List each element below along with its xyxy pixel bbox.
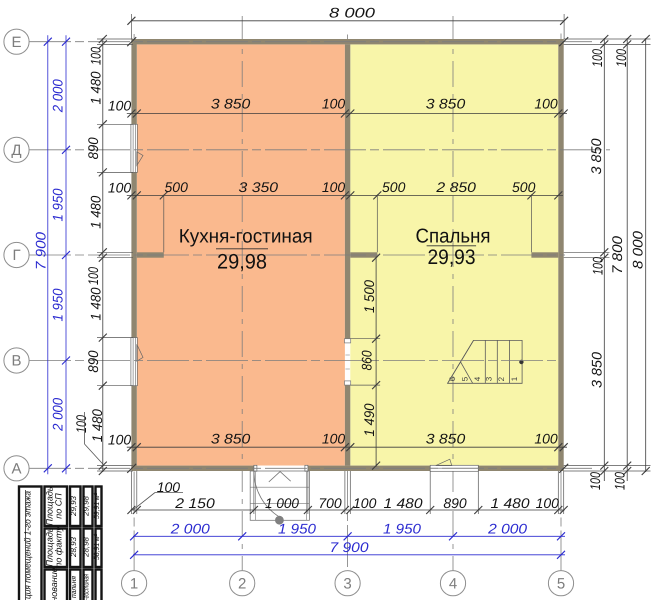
svg-text:100: 100: [589, 49, 605, 67]
svg-text:1 950: 1 950: [50, 188, 66, 221]
svg-text:3 850: 3 850: [426, 96, 466, 112]
svg-text:1 480: 1 480: [89, 409, 105, 442]
svg-text:по СП: по СП: [54, 493, 64, 519]
svg-text:1 480: 1 480: [88, 71, 104, 104]
svg-text:100: 100: [590, 257, 606, 275]
svg-text:100: 100: [108, 97, 132, 113]
svg-text:7 900: 7 900: [33, 232, 49, 270]
svg-text:1 950: 1 950: [278, 520, 316, 536]
svg-text:100: 100: [322, 96, 346, 112]
svg-text:100: 100: [534, 96, 558, 112]
svg-text:8 000: 8 000: [630, 231, 646, 269]
svg-text:3 850: 3 850: [589, 352, 605, 388]
svg-text:500: 500: [165, 179, 189, 195]
svg-text:2 000: 2 000: [50, 398, 66, 432]
svg-text:4: 4: [449, 575, 457, 592]
svg-text:2: 2: [497, 376, 506, 381]
svg-text:2 150: 2 150: [174, 495, 215, 511]
svg-text:28,93: 28,93: [69, 536, 78, 558]
svg-text:100: 100: [536, 495, 560, 511]
svg-text:7 900: 7 900: [330, 539, 369, 555]
svg-text:29,93: 29,93: [428, 246, 476, 269]
svg-text:1: 1: [130, 575, 138, 592]
svg-text:100: 100: [88, 47, 104, 65]
svg-text:2 850: 2 850: [435, 179, 476, 195]
svg-text:7 800: 7 800: [609, 236, 625, 274]
svg-text:890: 890: [85, 137, 101, 159]
svg-text:Г: Г: [12, 247, 20, 264]
svg-text:енование: енование: [49, 567, 59, 600]
svg-text:1: 1: [510, 376, 519, 381]
svg-text:1 950: 1 950: [50, 288, 66, 321]
svg-text:860: 860: [359, 350, 375, 370]
svg-text:3 850: 3 850: [211, 431, 251, 447]
svg-text:по факту: по факту: [54, 526, 64, 568]
svg-text:58,91 м²: 58,91 м²: [92, 534, 101, 560]
svg-text:пальня: пальня: [69, 576, 78, 598]
svg-text:2: 2: [238, 575, 246, 592]
svg-text:ция помещений 1-го этажа: ция помещений 1-го этажа: [23, 491, 33, 599]
svg-text:3 850: 3 850: [211, 96, 251, 112]
svg-text:1 490: 1 490: [361, 403, 377, 436]
svg-text:100: 100: [612, 472, 628, 490]
svg-text:3 850: 3 850: [426, 431, 466, 447]
svg-text:1 950: 1 950: [383, 520, 421, 536]
svg-text:6: 6: [448, 376, 457, 381]
svg-text:1 480: 1 480: [88, 196, 104, 229]
svg-text:2 000: 2 000: [170, 520, 210, 536]
svg-text:3 850: 3 850: [588, 138, 604, 174]
svg-text:100: 100: [534, 431, 558, 447]
svg-text:Д: Д: [11, 142, 21, 159]
svg-text:100: 100: [85, 267, 101, 285]
svg-text:5: 5: [557, 575, 565, 592]
svg-text:100: 100: [108, 431, 132, 447]
svg-text:Спальня: Спальня: [416, 226, 491, 248]
svg-text:В: В: [11, 353, 21, 370]
svg-text:100: 100: [108, 180, 132, 196]
svg-text:8 000: 8 000: [329, 4, 375, 20]
svg-text:1 480: 1 480: [491, 495, 530, 511]
svg-text:5: 5: [460, 376, 469, 381]
svg-text:100: 100: [73, 415, 89, 433]
svg-text:59,91 м²: 59,91 м²: [92, 493, 101, 519]
svg-text:500: 500: [512, 179, 536, 195]
svg-text:890: 890: [85, 350, 101, 372]
svg-text:29,98: 29,98: [81, 495, 90, 517]
svg-text:3: 3: [343, 575, 351, 592]
svg-text:100: 100: [353, 495, 377, 511]
svg-text:100: 100: [587, 472, 603, 490]
svg-text:1 000: 1 000: [265, 495, 299, 511]
svg-text:Кухня-гостиная: Кухня-гостиная: [179, 226, 313, 248]
svg-text:2 000: 2 000: [50, 79, 66, 113]
svg-text:29,98: 29,98: [217, 250, 267, 273]
svg-text:3: 3: [485, 376, 494, 381]
svg-text:500: 500: [382, 179, 406, 195]
svg-text:4: 4: [473, 376, 482, 381]
svg-text:А: А: [11, 461, 21, 478]
svg-text:-гостиная: -гостиная: [81, 574, 90, 600]
svg-text:29,93: 29,93: [69, 495, 78, 517]
svg-text:100: 100: [613, 49, 629, 67]
svg-text:100: 100: [322, 431, 346, 447]
svg-text:Е: Е: [11, 34, 21, 51]
svg-text:2 000: 2 000: [487, 520, 527, 536]
svg-text:1 480: 1 480: [88, 287, 104, 320]
svg-text:28,98: 28,98: [81, 536, 90, 558]
svg-text:1 480: 1 480: [384, 495, 423, 511]
svg-text:890: 890: [443, 495, 467, 511]
svg-text:100: 100: [322, 179, 346, 195]
svg-text:700: 700: [318, 495, 342, 511]
svg-text:1 500: 1 500: [361, 280, 377, 313]
svg-text:3 350: 3 350: [239, 179, 279, 195]
